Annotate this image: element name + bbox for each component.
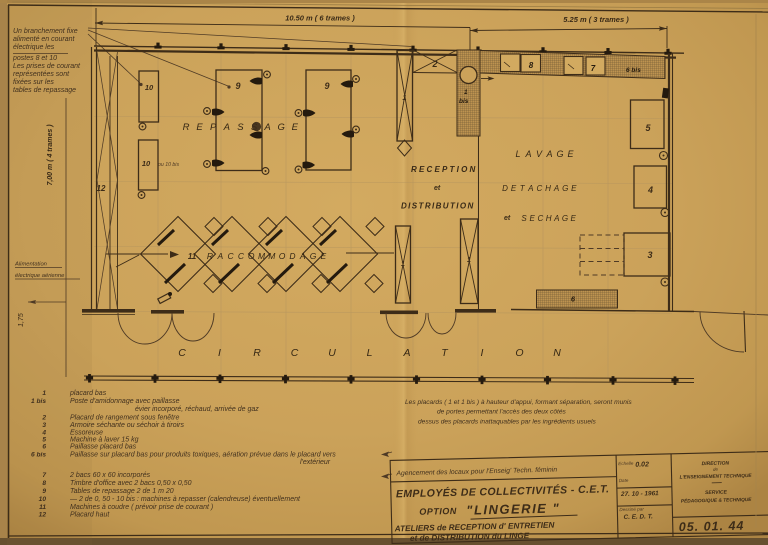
svg-text:E: E: [571, 214, 577, 223]
svg-text:9: 9: [324, 81, 329, 91]
svg-text:10.50 m ( 6 trames ): 10.50 m ( 6 trames ): [285, 14, 355, 23]
svg-text:Les placards ( 1 et 1 bis ) à: Les placards ( 1 et 1 bis ) à hauteur d'…: [405, 399, 632, 406]
svg-text:RECEPTION: RECEPTION: [411, 165, 477, 174]
svg-text:DISTRIBUTION: DISTRIBUTION: [401, 202, 475, 211]
svg-text:2 bacs 60 x 60 incorporés: 2 bacs 60 x 60 incorporés: [69, 472, 151, 479]
svg-text:1: 1: [467, 257, 471, 264]
svg-text:E: E: [292, 122, 299, 133]
svg-text:27. 10 - 1961: 27. 10 - 1961: [620, 490, 659, 498]
svg-text:D: D: [289, 251, 295, 261]
svg-text:placard bas: placard bas: [69, 390, 107, 397]
svg-text:alimenté en courant: alimenté en courant: [13, 36, 76, 43]
svg-text:10: 10: [39, 496, 47, 503]
svg-text:électrique les: électrique les: [13, 44, 55, 51]
svg-text:Tables de repassage 2 de 1 m 2: Tables de repassage 2 de 1 m 20: [70, 488, 174, 495]
svg-text:O: O: [279, 251, 286, 261]
svg-text:et: et: [504, 215, 511, 222]
svg-text:1 bis: 1 bis: [31, 398, 46, 405]
svg-text:M: M: [268, 251, 276, 261]
svg-text:1: 1: [402, 93, 406, 102]
svg-text:l'extérieur: l'extérieur: [300, 459, 331, 466]
svg-text:8: 8: [42, 480, 46, 487]
svg-text:7: 7: [591, 64, 596, 73]
svg-text:1: 1: [42, 390, 46, 397]
svg-text:Paillasse sur placard bas pour: Paillasse sur placard bas pour produits …: [70, 452, 336, 459]
svg-text:7: 7: [42, 472, 46, 479]
svg-text:Armoire séchante ou séchoir à: Armoire séchante ou séchoir à tiroirs: [69, 422, 184, 429]
svg-text:tables de repassage: tables de repassage: [13, 87, 76, 94]
svg-text:0.02: 0.02: [635, 461, 649, 468]
svg-text:6 bis: 6 bis: [626, 67, 641, 74]
svg-text:Machine à laver 15 kg: Machine à laver 15 kg: [70, 437, 139, 444]
svg-text:Les prises de courant: Les prises de courant: [13, 63, 81, 70]
svg-text:Poste d'amidonnage avec pailla: Poste d'amidonnage avec paillasse: [70, 398, 180, 405]
svg-text:Placard de rangement sous fenê: Placard de rangement sous fenêtre: [70, 415, 179, 422]
svg-text:9: 9: [42, 488, 46, 495]
svg-text:Machines à coudre ( prévoir pr: Machines à coudre ( prévoir prise de cou…: [70, 504, 213, 511]
svg-text:O: O: [515, 347, 523, 359]
svg-text:9: 9: [235, 81, 240, 91]
svg-text:A: A: [299, 251, 306, 261]
svg-text:E: E: [511, 184, 517, 193]
svg-text:S: S: [237, 122, 244, 133]
svg-text:de: de: [713, 467, 719, 472]
svg-text:1: 1: [401, 261, 405, 268]
svg-text:5.25 m ( 3 trames ): 5.25 m ( 3 trames ): [563, 15, 629, 24]
svg-text:ou 10 bis: ou 10 bis: [158, 162, 179, 168]
svg-text:Timbre d'office avec 2 bacs 0,: Timbre d'office avec 2 bacs 0,50 x 0,50: [70, 480, 192, 487]
svg-text:Un branchement fixe: Un branchement fixe: [13, 28, 78, 35]
svg-text:A: A: [553, 214, 559, 223]
svg-text:6 bis: 6 bis: [31, 452, 46, 459]
svg-text:11: 11: [39, 504, 46, 511]
svg-text:N: N: [553, 347, 561, 359]
svg-text:Dessiné par: Dessiné par: [619, 506, 644, 512]
svg-text:C: C: [538, 214, 544, 223]
svg-text:OPTION: OPTION: [419, 506, 457, 517]
svg-text:3: 3: [42, 422, 46, 429]
svg-text:C: C: [228, 251, 235, 261]
svg-text:SERVICE: SERVICE: [705, 490, 728, 497]
svg-text:2: 2: [431, 59, 437, 69]
svg-text:C: C: [291, 347, 299, 359]
svg-text:E: E: [196, 122, 203, 133]
svg-text:bis: bis: [459, 98, 469, 105]
svg-text:E: E: [530, 214, 536, 223]
svg-text:L: L: [367, 347, 373, 359]
svg-text:1: 1: [464, 89, 468, 96]
svg-text:A: A: [223, 122, 230, 133]
svg-text:dessus des placards inattaquab: dessus des placards inattaquables par le…: [418, 419, 596, 426]
svg-text:Echelle: Echelle: [618, 461, 634, 466]
svg-text:G: G: [562, 184, 568, 193]
svg-text:G: G: [278, 122, 285, 133]
svg-text:C: C: [537, 184, 543, 193]
svg-text:Paillasse placard bas: Paillasse placard bas: [70, 444, 137, 451]
svg-text:1,75: 1,75: [18, 313, 25, 327]
svg-text:5: 5: [42, 437, 46, 444]
svg-text:2: 2: [41, 415, 46, 422]
svg-text:représentées sont: représentées sont: [13, 71, 70, 78]
svg-text:S: S: [521, 214, 527, 223]
svg-text:fixées sur les: fixées sur les: [13, 79, 54, 86]
svg-text:L: L: [515, 149, 520, 159]
svg-text:R: R: [183, 122, 190, 133]
svg-text:Date: Date: [619, 478, 629, 483]
svg-text:11: 11: [188, 252, 197, 261]
svg-text:postes 8 et 10: postes 8 et 10: [12, 55, 57, 62]
svg-text:10: 10: [142, 159, 151, 168]
svg-text:M: M: [258, 251, 266, 261]
svg-text:Placard haut: Placard haut: [70, 512, 110, 519]
svg-text:R: R: [207, 251, 213, 261]
svg-text:E: E: [320, 251, 326, 261]
svg-text:U: U: [328, 347, 336, 359]
svg-text:I: I: [481, 347, 484, 359]
svg-text:C. E. D. T.: C. E. D. T.: [623, 513, 653, 521]
svg-text:3: 3: [647, 250, 652, 260]
svg-text:G: G: [562, 214, 568, 223]
svg-text:05. 01. 44: 05. 01. 44: [679, 519, 745, 535]
svg-text:électrique aérienne: électrique aérienne: [15, 273, 65, 279]
svg-text:O: O: [248, 251, 255, 261]
svg-text:R: R: [253, 347, 261, 359]
svg-text:— 2 de 0, 50 - 10 bis : mac: — 2 de 0, 50 - 10 bis : machines à repas…: [69, 496, 301, 503]
svg-text:E: E: [567, 149, 574, 159]
svg-text:évier incorporé, réchaud, arri: évier incorporé, réchaud, arrivée de gaz: [135, 406, 259, 413]
svg-text:G: G: [556, 149, 563, 159]
svg-text:A: A: [216, 251, 223, 261]
svg-text:Alimentation: Alimentation: [14, 262, 47, 268]
svg-text:H: H: [545, 184, 551, 193]
svg-text:4: 4: [41, 430, 46, 437]
svg-text:E: E: [571, 184, 577, 193]
svg-text:12: 12: [39, 512, 47, 519]
svg-text:6: 6: [42, 444, 46, 451]
svg-text:"LINGERIE ": "LINGERIE ": [466, 500, 560, 517]
svg-text:de portes permettant l'accès d: de portes permettant l'accès des deux cô…: [437, 409, 567, 416]
svg-text:Essoreuse: Essoreuse: [70, 430, 103, 437]
svg-text:8: 8: [529, 61, 534, 70]
svg-text:12: 12: [97, 184, 106, 193]
svg-text:V: V: [536, 149, 543, 159]
svg-text:A: A: [527, 184, 533, 193]
svg-text:C: C: [238, 251, 245, 261]
svg-text:A: A: [553, 184, 559, 193]
svg-text:I: I: [218, 347, 221, 359]
svg-text:4: 4: [647, 185, 653, 195]
svg-text:et: et: [434, 185, 441, 192]
svg-text:C: C: [178, 347, 186, 359]
svg-text:A: A: [524, 149, 531, 159]
svg-text:A: A: [263, 122, 270, 133]
svg-text:10: 10: [145, 83, 154, 92]
svg-text:D: D: [502, 184, 508, 193]
svg-text:7,00 m ( 4 trames ): 7,00 m ( 4 trames ): [47, 124, 54, 186]
svg-text:G: G: [310, 251, 317, 261]
svg-text:A: A: [545, 149, 552, 159]
svg-text:H: H: [546, 214, 552, 223]
svg-text:A: A: [402, 347, 410, 359]
